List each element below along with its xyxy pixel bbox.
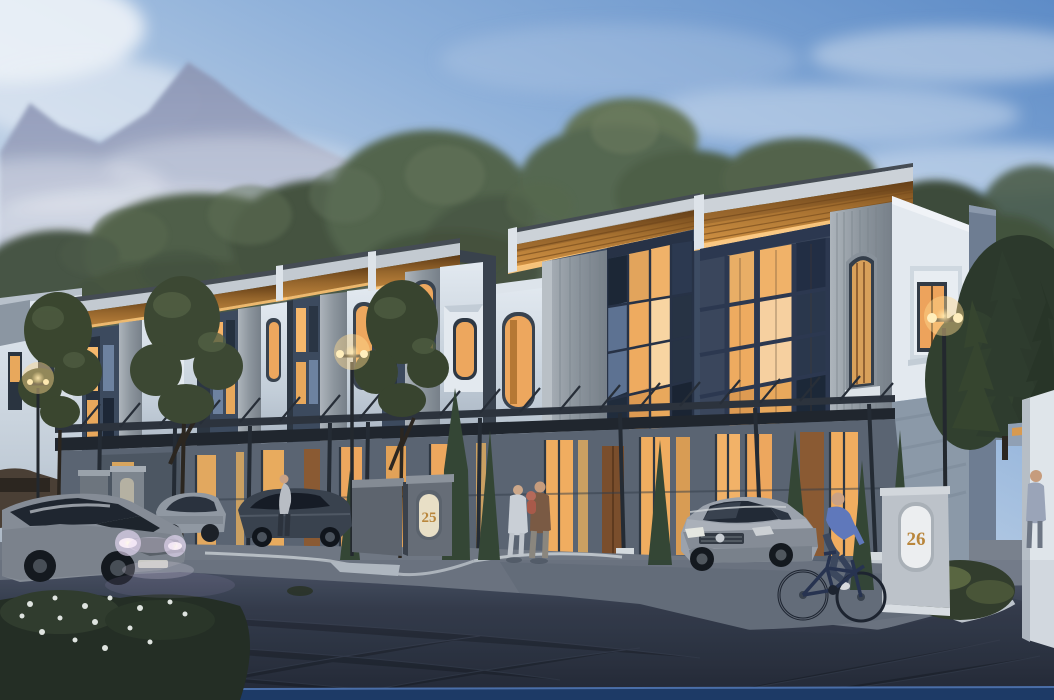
svg-text:25: 25 bbox=[422, 510, 437, 526]
svg-text:26: 26 bbox=[907, 529, 926, 550]
